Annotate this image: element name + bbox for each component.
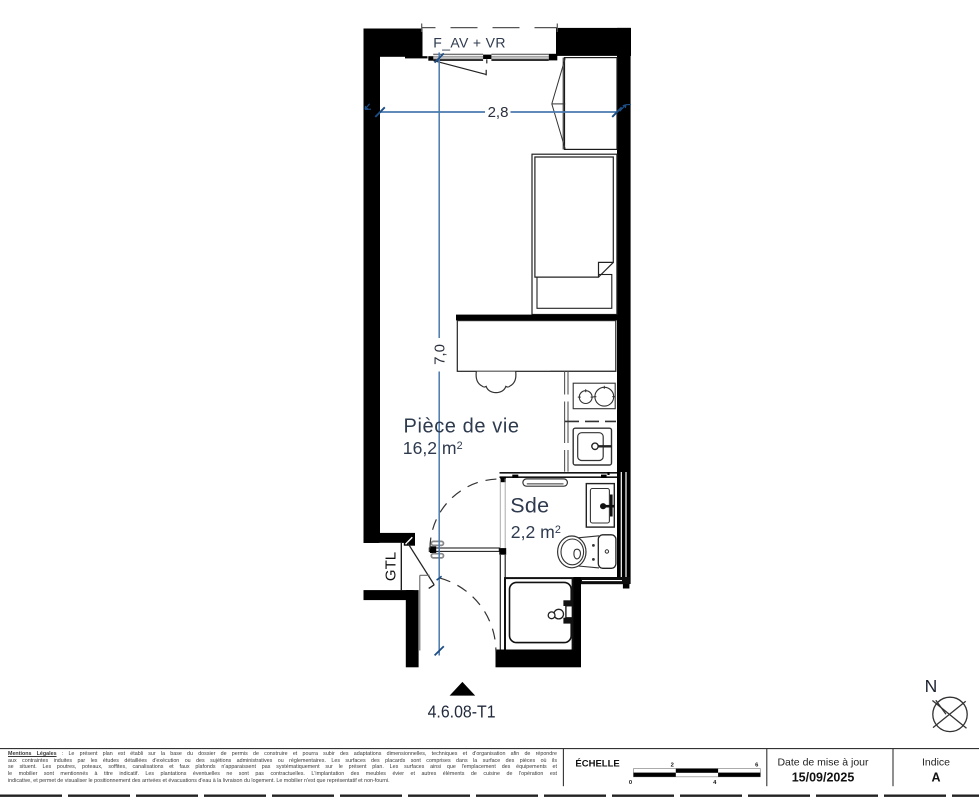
svg-text:4.6.08-T1: 4.6.08-T1 [428, 702, 496, 722]
svg-text:GTL: GTL [383, 552, 400, 581]
svg-text:Sde: Sde [510, 493, 549, 517]
svg-text:7,0: 7,0 [431, 344, 448, 365]
svg-text:2,2 m2: 2,2 m2 [511, 522, 561, 542]
svg-text:ÉCHELLE: ÉCHELLE [575, 758, 619, 769]
svg-text:Indice: Indice [922, 756, 950, 768]
svg-text:0: 0 [629, 780, 632, 786]
svg-text:A: A [931, 771, 940, 785]
svg-text:2,8: 2,8 [488, 104, 509, 121]
svg-text:16,2 m2: 16,2 m2 [403, 438, 463, 458]
svg-text:F_AV + VR: F_AV + VR [433, 35, 506, 51]
svg-text:15/09/2025: 15/09/2025 [792, 771, 855, 785]
svg-text:N: N [925, 676, 938, 696]
svg-text:2: 2 [671, 763, 674, 769]
svg-text:Pièce de vie: Pièce de vie [404, 415, 520, 437]
svg-text:Date de mise à jour: Date de mise à jour [777, 756, 869, 768]
